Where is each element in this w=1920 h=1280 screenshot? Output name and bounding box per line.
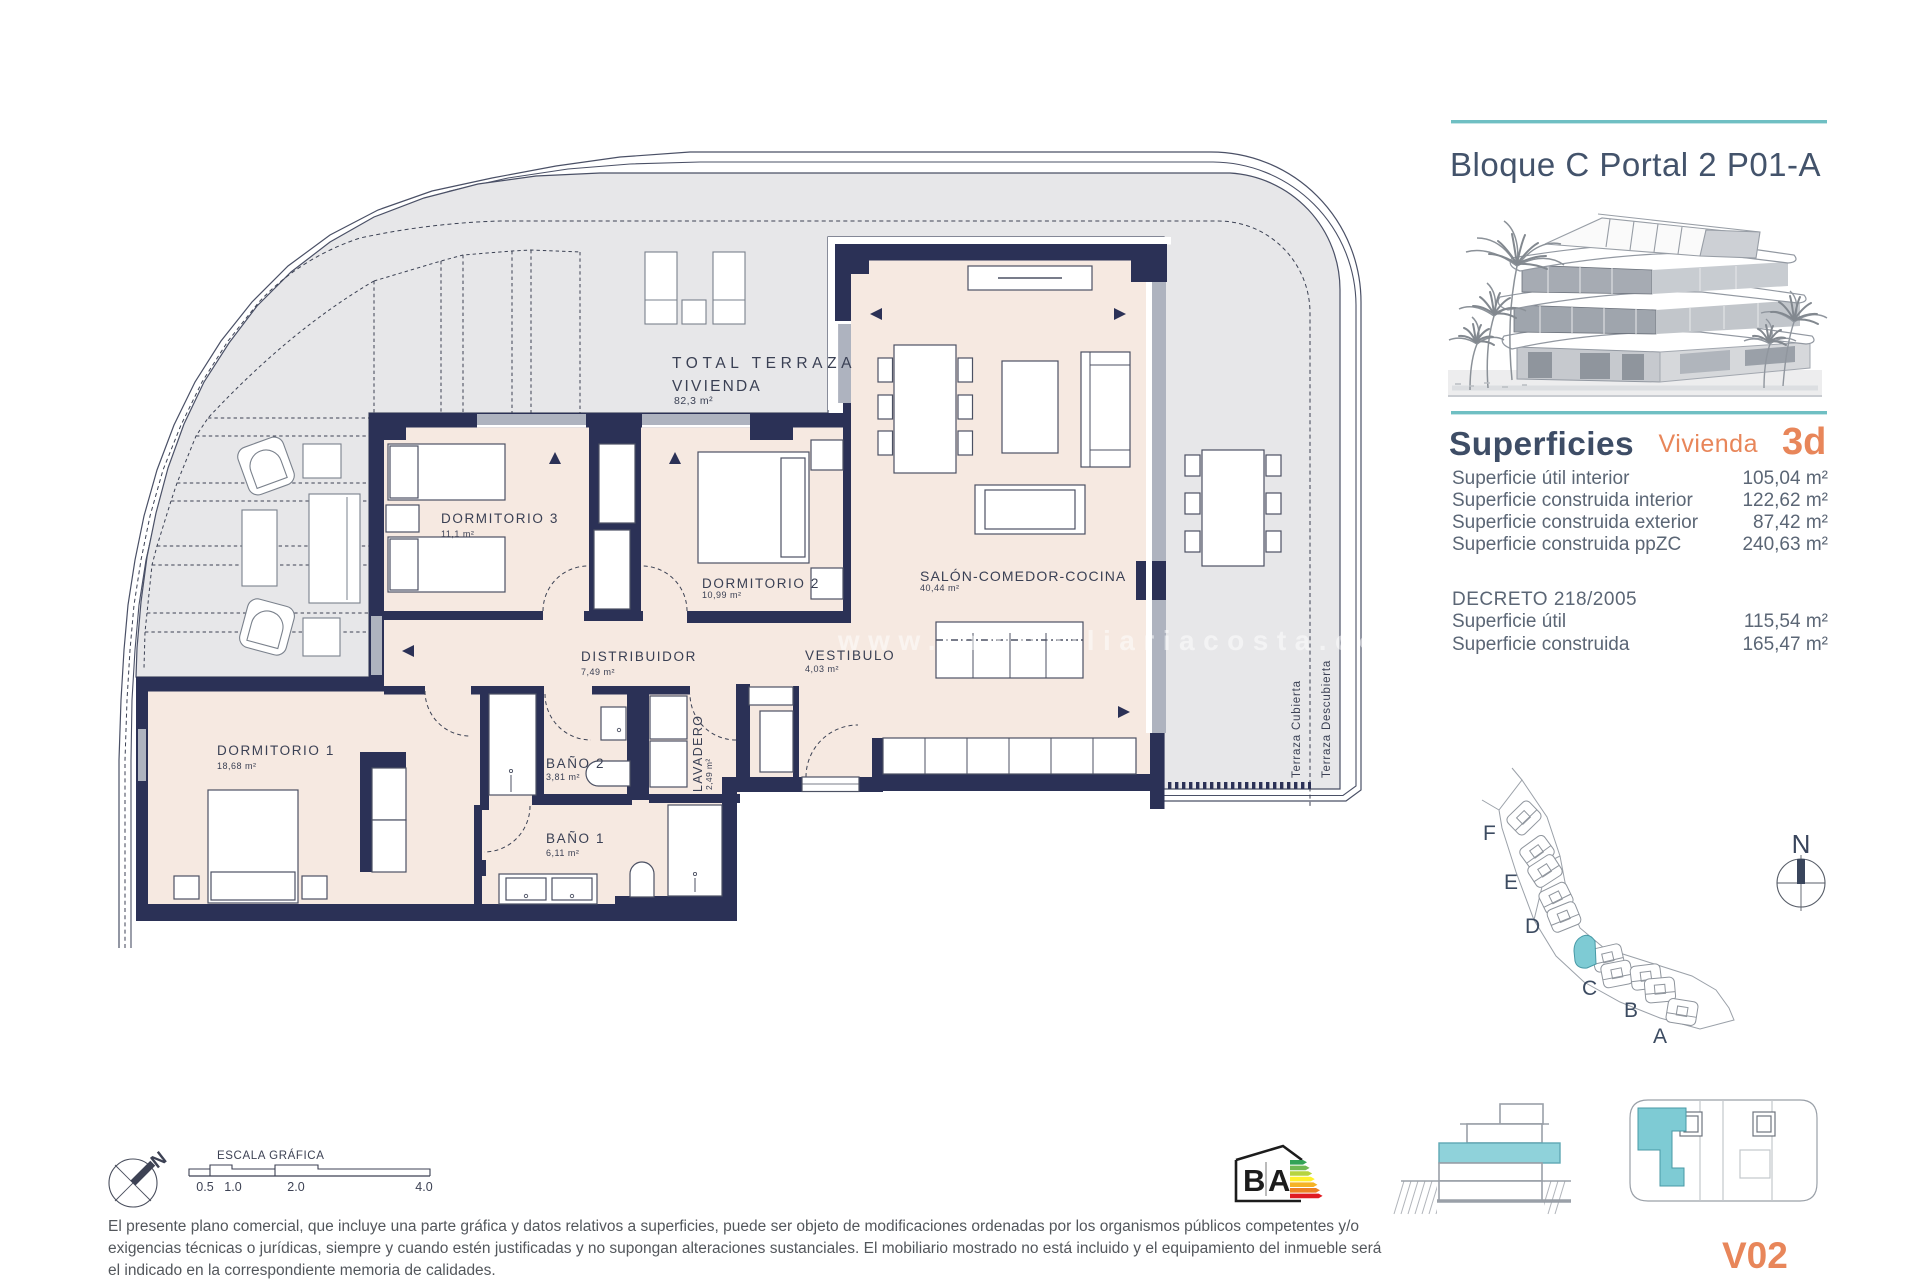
svg-text:Terraza Cubierta: Terraza Cubierta: [1291, 680, 1303, 778]
svg-text:Superficie útil: Superficie útil: [1452, 611, 1566, 632]
svg-text:Bloque C Portal 2 P01-A: Bloque C Portal 2 P01-A: [1450, 146, 1821, 183]
svg-text:87,42 m²: 87,42 m²: [1753, 512, 1828, 533]
svg-text:DECRETO 218/2005: DECRETO 218/2005: [1452, 589, 1637, 610]
svg-text:TOTAL TERRAZA: TOTAL TERRAZA: [672, 355, 856, 372]
svg-text:122,62 m²: 122,62 m²: [1742, 490, 1828, 511]
svg-text:4.0: 4.0: [415, 1180, 432, 1194]
svg-text:DORMITORIO 1: DORMITORIO 1: [217, 743, 335, 758]
svg-text:115,54 m²: 115,54 m²: [1744, 611, 1828, 632]
svg-text:E: E: [1504, 871, 1518, 894]
svg-text:Superficie construida: Superficie construida: [1452, 634, 1630, 655]
svg-text:F: F: [1483, 822, 1496, 845]
svg-text:0.5: 0.5: [196, 1180, 213, 1194]
svg-text:V02: V02: [1722, 1235, 1788, 1276]
svg-text:DORMITORIO 3: DORMITORIO 3: [441, 511, 559, 526]
svg-text:105,04 m²: 105,04 m²: [1742, 468, 1828, 489]
svg-text:3d: 3d: [1782, 421, 1826, 463]
svg-text:11,1 m²: 11,1 m²: [441, 529, 474, 539]
svg-text:Superficies: Superficies: [1449, 426, 1634, 463]
svg-text:ESCALA GRÁFICA: ESCALA GRÁFICA: [217, 1149, 324, 1162]
svg-text:4,03 m²: 4,03 m²: [805, 664, 839, 674]
svg-text:2,49 m²: 2,49 m²: [704, 758, 714, 790]
svg-text:El presente plano comercial, q: El presente plano comercial, que incluye…: [108, 1218, 1359, 1235]
svg-text:exigencias técnicas o jurídica: exigencias técnicas o jurídicas, siempre…: [108, 1240, 1382, 1257]
svg-text:40,44 m²: 40,44 m²: [920, 583, 960, 593]
svg-text:Terraza Descubierta: Terraza Descubierta: [1321, 660, 1333, 778]
svg-text:82,3 m²: 82,3 m²: [674, 395, 713, 407]
svg-text:N: N: [1792, 829, 1811, 859]
svg-text:D: D: [1525, 915, 1540, 938]
svg-text:A: A: [1268, 1163, 1290, 1198]
svg-text:Vivienda: Vivienda: [1659, 430, 1758, 458]
svg-text:LAVADERO: LAVADERO: [691, 715, 705, 792]
svg-text:BAÑO 1: BAÑO 1: [546, 831, 605, 846]
svg-text:10,99 m²: 10,99 m²: [702, 590, 742, 600]
svg-text:el indicado en la correspondie: el indicado en la correspondiente memori…: [108, 1262, 496, 1279]
svg-text:B: B: [1243, 1163, 1265, 1198]
svg-text:18,68 m²: 18,68 m²: [217, 761, 257, 771]
svg-text:B: B: [1624, 999, 1638, 1022]
svg-text:Superficie útil interior: Superficie útil interior: [1452, 468, 1630, 489]
svg-text:www.inmobiliariacosta.com: www.inmobiliariacosta.com: [837, 625, 1418, 656]
svg-text:Superficie construida ppZC: Superficie construida ppZC: [1452, 534, 1681, 555]
svg-text:7,49 m²: 7,49 m²: [581, 667, 615, 677]
svg-text:1.0: 1.0: [224, 1180, 241, 1194]
svg-text:3,81 m²: 3,81 m²: [546, 772, 580, 782]
svg-text:Superficie construida exterior: Superficie construida exterior: [1452, 512, 1699, 533]
svg-text:2.0: 2.0: [287, 1180, 304, 1194]
svg-text:Superficie construida interior: Superficie construida interior: [1452, 490, 1693, 511]
svg-text:DORMITORIO 2: DORMITORIO 2: [702, 576, 820, 591]
svg-text:240,63 m²: 240,63 m²: [1742, 534, 1828, 555]
svg-text:A: A: [1653, 1025, 1667, 1048]
svg-text:C: C: [1582, 977, 1597, 1000]
svg-text:165,47 m²: 165,47 m²: [1742, 634, 1828, 655]
svg-text:VIVIENDA: VIVIENDA: [672, 378, 762, 395]
svg-text:SALÓN-COMEDOR-COCINA: SALÓN-COMEDOR-COCINA: [920, 568, 1126, 584]
svg-text:6,11 m²: 6,11 m²: [546, 848, 579, 858]
svg-text:DISTRIBUIDOR: DISTRIBUIDOR: [581, 649, 697, 664]
svg-text:BAÑO 2: BAÑO 2: [546, 756, 605, 771]
